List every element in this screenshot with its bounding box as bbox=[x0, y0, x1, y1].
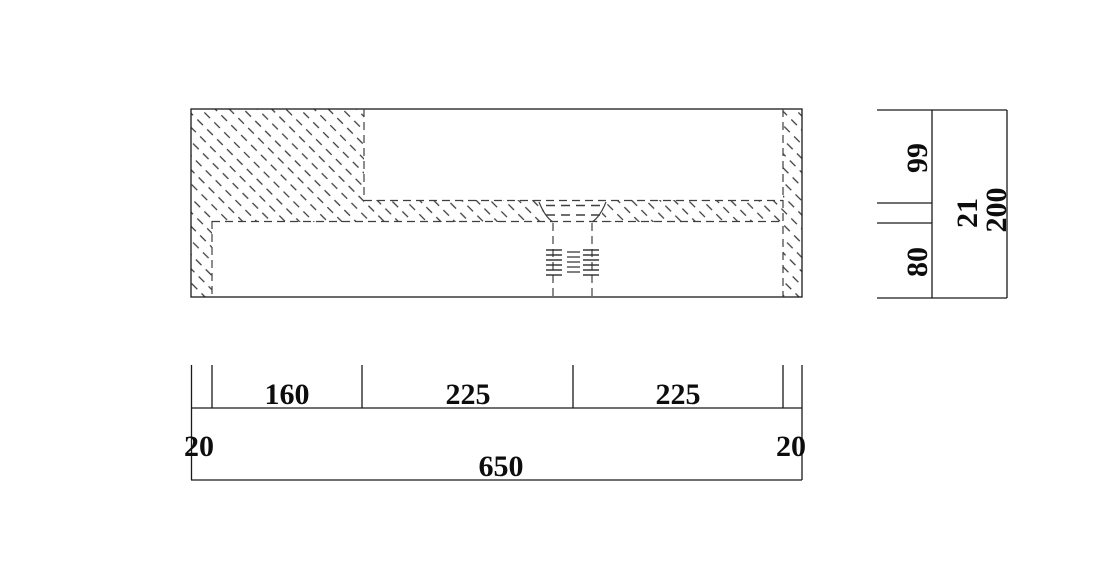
cad-drawing-canvas: 160 225 225 20 20 650 99 80 21 200 bbox=[0, 0, 1112, 568]
dim-label-650: 650 bbox=[479, 450, 524, 483]
bolt-thread-core bbox=[567, 252, 580, 272]
bolt-thread-right bbox=[583, 250, 599, 275]
dim-label-225-right: 225 bbox=[656, 378, 701, 411]
bottom-dimensions: 160 225 225 20 20 650 bbox=[184, 365, 806, 483]
hatch-left-wall bbox=[191, 222, 212, 297]
hatch-right-wall bbox=[783, 109, 802, 297]
dim-label-20-left: 20 bbox=[184, 430, 214, 463]
section-view bbox=[191, 109, 802, 297]
bolt-thread-left bbox=[546, 250, 562, 275]
dim-label-160: 160 bbox=[265, 378, 310, 411]
dim-label-80: 80 bbox=[901, 247, 934, 277]
section-drawing: 160 225 225 20 20 650 99 80 21 200 bbox=[0, 0, 1112, 568]
right-dimensions: 99 80 21 200 bbox=[877, 110, 1013, 298]
dim-label-20-right: 20 bbox=[776, 430, 806, 463]
dim-label-99: 99 bbox=[901, 143, 934, 173]
bolt-head-cutout bbox=[544, 201, 602, 221]
hatch-top-left-block bbox=[191, 109, 364, 222]
dim-label-225-left: 225 bbox=[446, 378, 491, 411]
dim-label-200: 200 bbox=[980, 188, 1013, 233]
